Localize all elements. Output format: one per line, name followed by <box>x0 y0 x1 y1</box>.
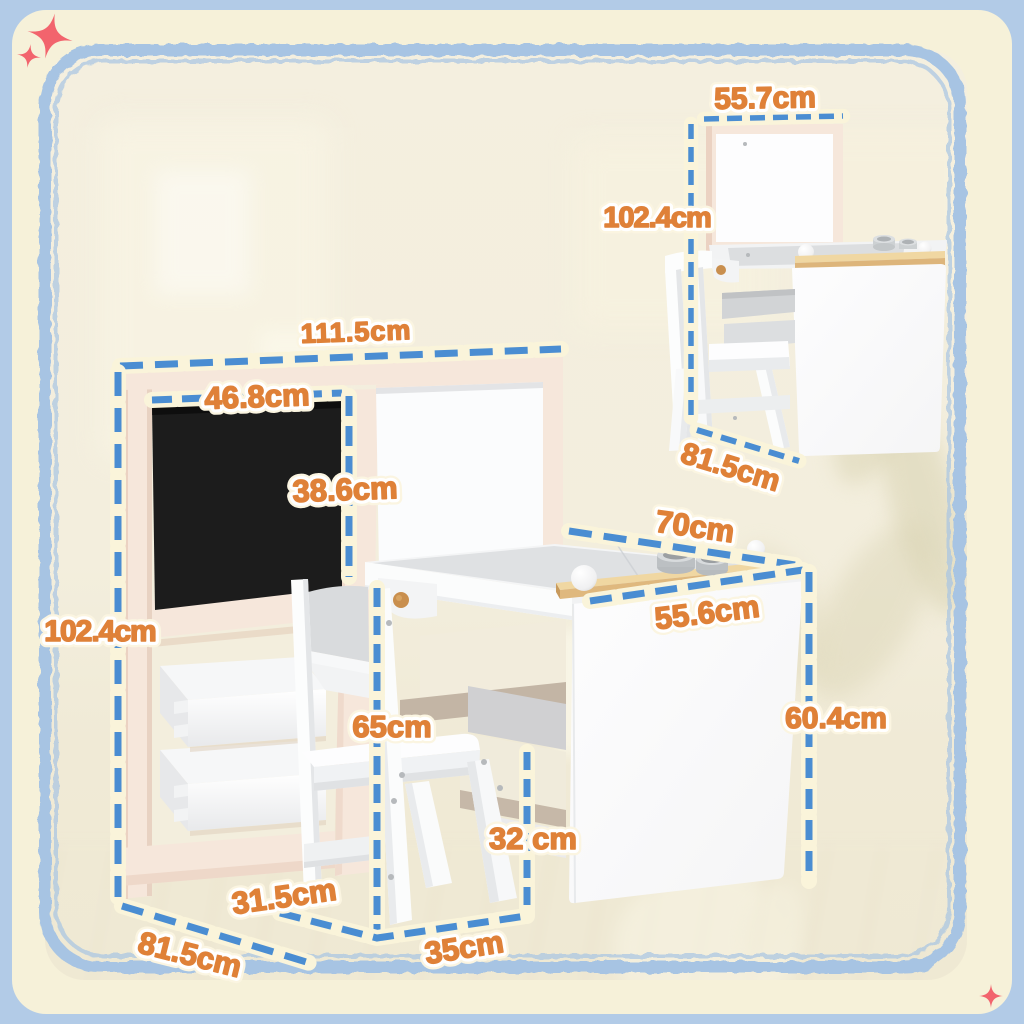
svg-text:60.4cm: 60.4cm <box>785 702 887 735</box>
svg-text:102.4cm: 102.4cm <box>603 202 711 234</box>
svg-text:46.8cm: 46.8cm <box>204 377 310 416</box>
svg-text:55.7cm: 55.7cm <box>714 81 816 116</box>
svg-text:38.6cm: 38.6cm <box>292 470 398 509</box>
svg-text:31.5cm: 31.5cm <box>230 872 339 921</box>
svg-text:32 cm: 32 cm <box>489 821 577 856</box>
svg-text:111.5cm: 111.5cm <box>300 315 412 349</box>
svg-text:65cm: 65cm <box>352 709 431 744</box>
svg-text:102.4cm: 102.4cm <box>44 615 155 648</box>
